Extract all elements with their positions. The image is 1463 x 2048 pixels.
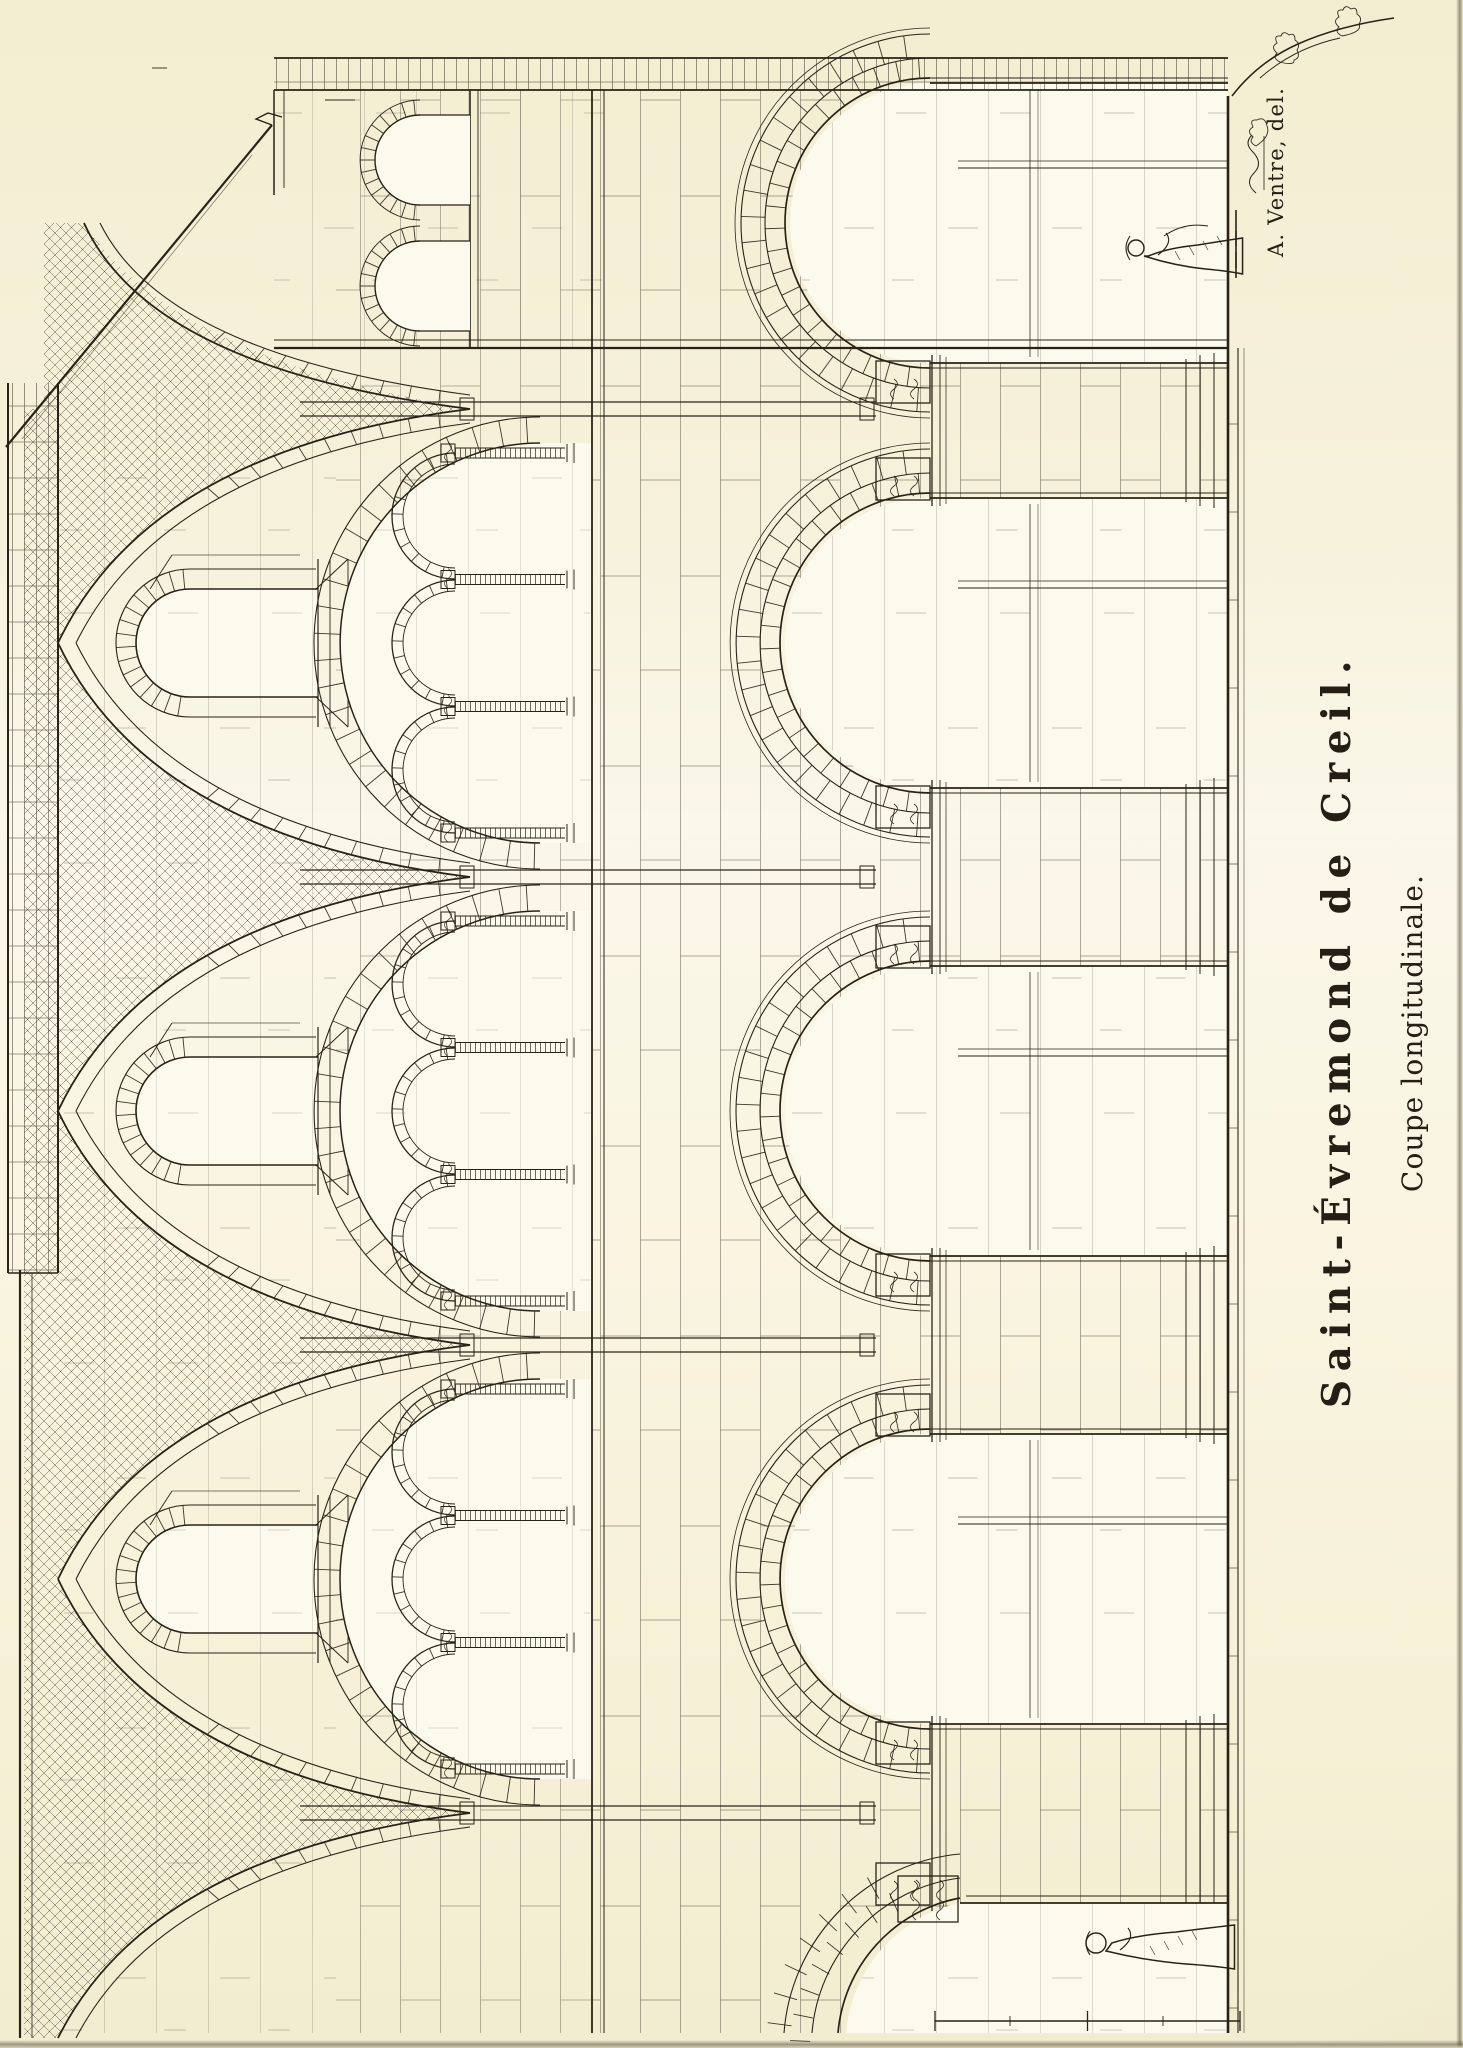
church-section-engraving xyxy=(0,0,1463,2048)
page-edge-shadow-bottom xyxy=(0,2040,1463,2048)
plate-rotated-content: Saint-Évremond de Creil. Coupe longitudi… xyxy=(0,0,1463,2048)
book-page: { "plate": { "title": "Saint-Évremond de… xyxy=(0,0,1463,2048)
plate-credit: A. Ventre, del. xyxy=(1264,0,1288,352)
plate-title: Saint-Évremond de Creil. xyxy=(1314,430,1360,1630)
plate-subtitle: Coupe longitudinale. xyxy=(1396,533,1429,1533)
page-edge-shadow-right xyxy=(1456,0,1463,2048)
